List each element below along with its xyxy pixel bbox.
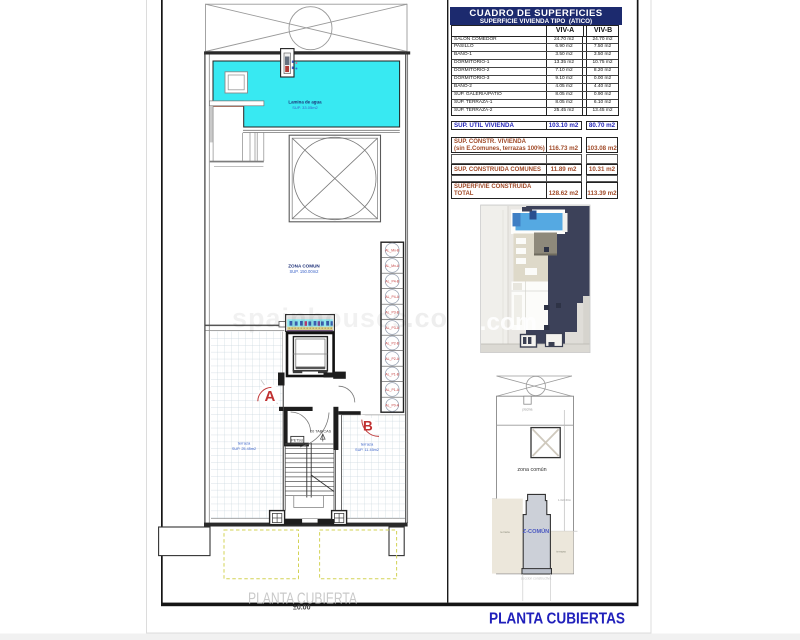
svg-text:PLANTA CUBIERTAS: PLANTA CUBIERTAS [489, 611, 625, 628]
